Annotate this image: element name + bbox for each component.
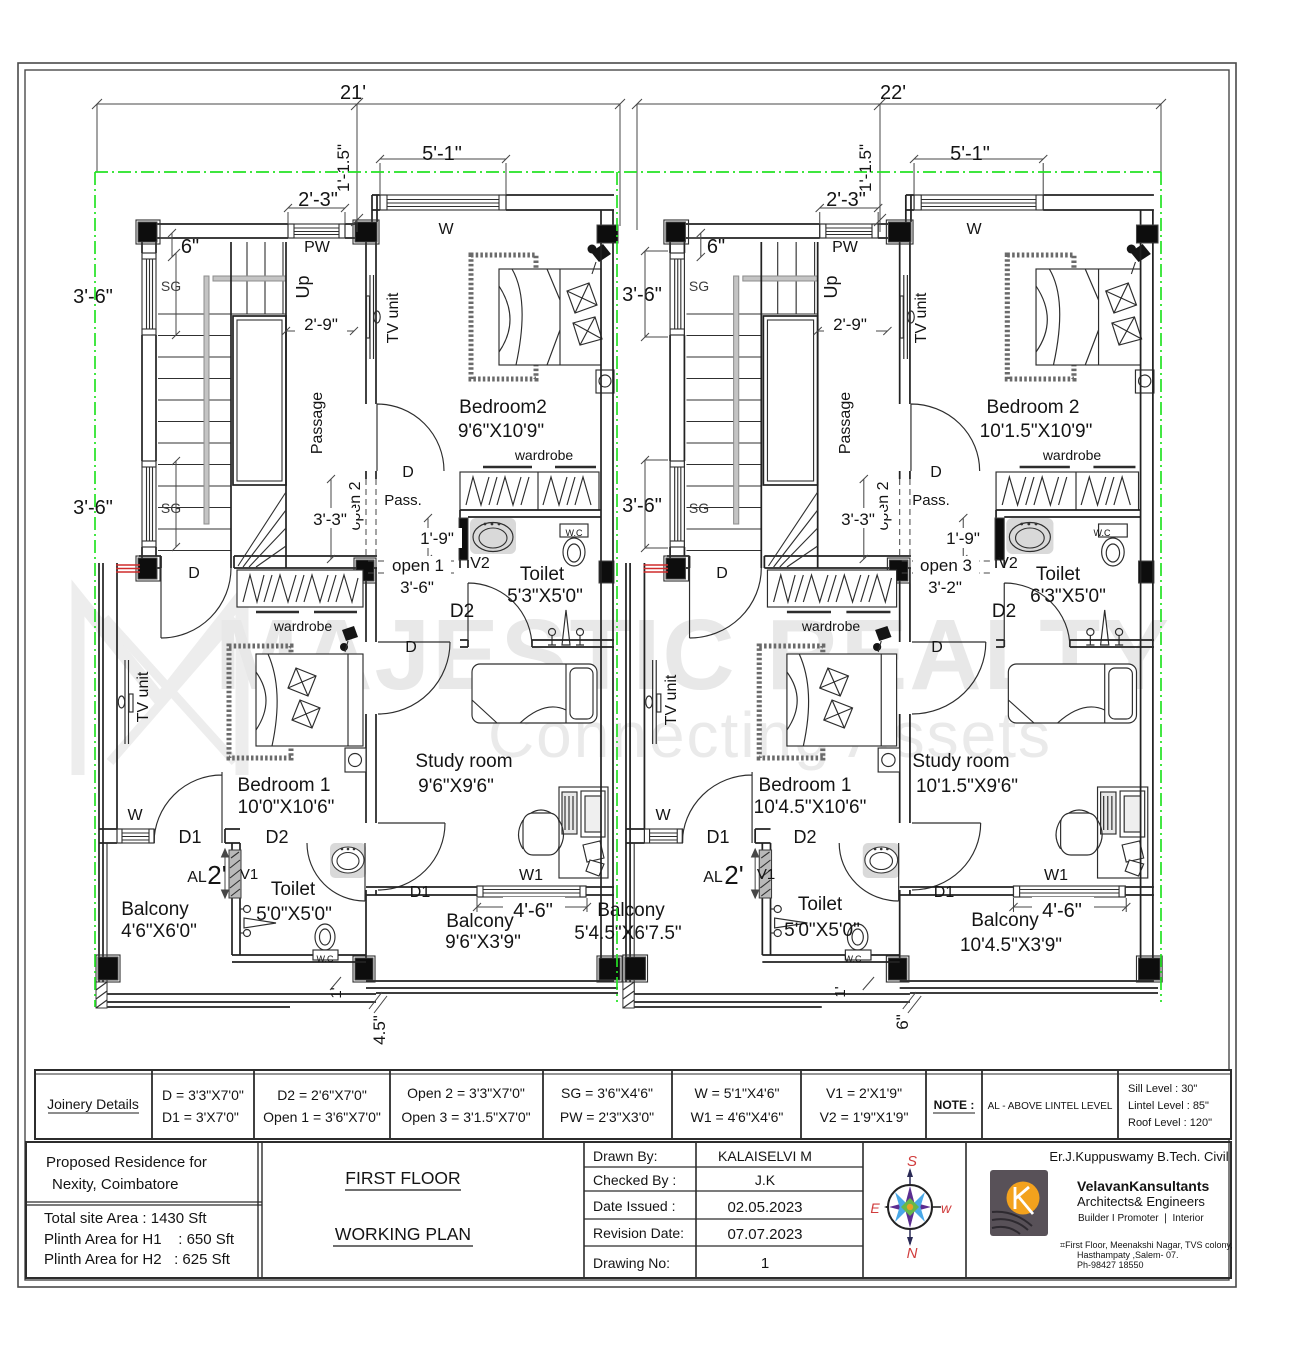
svg-text:Lintel Level : 85": Lintel Level : 85" — [1128, 1100, 1209, 1112]
svg-text:3'-6": 3'-6" — [73, 497, 113, 519]
svg-text:Balcony: Balcony — [446, 911, 514, 932]
svg-text:D: D — [405, 639, 417, 656]
svg-text:1: 1 — [761, 1255, 769, 1272]
svg-text:02.05.2023: 02.05.2023 — [727, 1199, 802, 1216]
svg-text:D = 3'3"X7'0": D = 3'3"X7'0" — [162, 1087, 244, 1103]
svg-text:9'6"X3'9": 9'6"X3'9" — [445, 932, 521, 953]
svg-text:6": 6" — [707, 236, 725, 258]
svg-text:V1 = 2'X1'9": V1 = 2'X1'9" — [826, 1085, 902, 1101]
svg-text:Drawn By:: Drawn By: — [593, 1148, 658, 1164]
svg-text:3'-6": 3'-6" — [622, 495, 662, 517]
svg-text:Revision Date:: Revision Date: — [593, 1225, 684, 1241]
svg-text:AL: AL — [187, 869, 207, 886]
svg-text:D2 = 2'6"X7'0": D2 = 2'6"X7'0" — [277, 1087, 367, 1103]
svg-text:3'-6": 3'-6" — [400, 578, 434, 597]
svg-text:Up: Up — [293, 275, 313, 298]
svg-text:WORKING PLAN: WORKING PLAN — [335, 1224, 471, 1244]
svg-text:NOTE :: NOTE : — [934, 1098, 975, 1112]
svg-text:E: E — [870, 1200, 880, 1216]
svg-text:Toilet: Toilet — [1036, 564, 1081, 585]
svg-text:Open 1 = 3'6"X7'0": Open 1 = 3'6"X7'0" — [263, 1109, 381, 1125]
svg-text:1': 1' — [832, 986, 849, 997]
svg-text:W: W — [655, 807, 671, 824]
svg-text:w: w — [941, 1200, 952, 1216]
svg-text:10'1.5"X10'9": 10'1.5"X10'9" — [980, 421, 1093, 442]
svg-text:Bedroom 1: Bedroom 1 — [759, 775, 852, 796]
svg-text:4.5": 4.5" — [370, 1015, 389, 1045]
svg-text:D: D — [402, 464, 414, 481]
svg-text:Bedroom 2: Bedroom 2 — [987, 397, 1080, 418]
svg-text:Hasthampaty ,Salem- 07.: Hasthampaty ,Salem- 07. — [1077, 1250, 1179, 1260]
svg-text:5'-1": 5'-1" — [950, 143, 990, 165]
svg-text:9'6"X10'9": 9'6"X10'9" — [458, 421, 544, 442]
svg-text:W1: W1 — [519, 867, 543, 884]
svg-text:SG = 3'6"X4'6": SG = 3'6"X4'6" — [561, 1085, 653, 1101]
svg-text:07.07.2023: 07.07.2023 — [727, 1226, 802, 1243]
svg-text:5'0"X5'0": 5'0"X5'0" — [784, 920, 860, 941]
svg-text:Plinth Area for H2 : 625 Sft: Plinth Area for H2 : 625 Sft — [44, 1251, 231, 1268]
svg-text:wardrobe: wardrobe — [514, 447, 574, 463]
svg-text:3'-3": 3'-3" — [841, 510, 875, 529]
svg-text:AL - ABOVE LINTEL LEVEL: AL - ABOVE LINTEL LEVEL — [988, 1101, 1113, 1112]
svg-text:open 1: open 1 — [392, 556, 444, 575]
svg-text:TV unit: TV unit — [913, 292, 930, 343]
svg-text:Ph-98427 18550: Ph-98427 18550 — [1077, 1260, 1144, 1270]
svg-text:Builder I Promoter ❘ Inter: Builder I Promoter ❘ Interior — [1078, 1213, 1204, 1224]
svg-text:V1: V1 — [757, 866, 775, 883]
svg-text:5'4.5"X6'7.5": 5'4.5"X6'7.5" — [574, 923, 681, 944]
svg-text:Date Issued :: Date Issued : — [593, 1198, 676, 1214]
svg-text:3'-6": 3'-6" — [622, 284, 662, 306]
svg-text:2': 2' — [724, 860, 743, 890]
svg-text:Toilet: Toilet — [520, 564, 565, 585]
svg-text:6": 6" — [893, 1014, 912, 1030]
svg-text:⌗First Floor, Meenakshi Nagar,: ⌗First Floor, Meenakshi Nagar, TVS colon… — [1060, 1240, 1233, 1250]
svg-text:Open 2 = 3'3"X7'0": Open 2 = 3'3"X7'0" — [407, 1085, 525, 1101]
svg-text:Balcony: Balcony — [597, 900, 665, 921]
svg-text:Nexity, Coimbatore: Nexity, Coimbatore — [52, 1176, 178, 1193]
svg-text:Checked By :: Checked By : — [593, 1172, 676, 1188]
svg-text:PW: PW — [304, 239, 331, 256]
svg-text:Pass.: Pass. — [912, 492, 950, 509]
svg-text:Balcony: Balcony — [121, 899, 189, 920]
svg-text:5'0"X5'0": 5'0"X5'0" — [256, 904, 332, 925]
svg-text:D1: D1 — [410, 884, 431, 901]
svg-text:D2: D2 — [265, 827, 288, 847]
svg-text:VelavanKansultants: VelavanKansultants — [1077, 1178, 1209, 1194]
svg-text:V2: V2 — [470, 555, 490, 572]
svg-text:W.C: W.C — [845, 954, 862, 964]
svg-text:W.C: W.C — [566, 528, 583, 538]
svg-text:W1: W1 — [1044, 867, 1068, 884]
svg-text:SG: SG — [161, 500, 181, 516]
svg-text:Pass.: Pass. — [384, 492, 422, 509]
svg-text:D2: D2 — [793, 827, 816, 847]
svg-text:wardrobe: wardrobe — [801, 618, 861, 634]
svg-text:PW: PW — [832, 239, 859, 256]
svg-text:W: W — [966, 221, 982, 238]
svg-text:TV unit: TV unit — [385, 292, 402, 343]
svg-text:5'3"X5'0": 5'3"X5'0" — [507, 586, 583, 607]
svg-text:FIRST FLOOR: FIRST FLOOR — [345, 1168, 460, 1188]
svg-text:W = 5'1"X4'6": W = 5'1"X4'6" — [695, 1085, 780, 1101]
svg-text:1'-9": 1'-9" — [946, 529, 980, 548]
svg-text:W.C: W.C — [317, 954, 334, 964]
svg-text:Sill Level : 30": Sill Level : 30" — [1128, 1083, 1197, 1095]
svg-text:N: N — [907, 1245, 918, 1262]
svg-text:Total site Area : 1430 Sft: Total site Area : 1430 Sft — [44, 1210, 207, 1227]
svg-text:TV unit: TV unit — [663, 674, 680, 725]
svg-text:Up: Up — [821, 275, 841, 298]
svg-text:4'-6": 4'-6" — [513, 900, 553, 922]
svg-text:10'0"X10'6": 10'0"X10'6" — [238, 797, 335, 818]
svg-text:D2: D2 — [992, 601, 1016, 622]
svg-text:V2 = 1'9"X1'9": V2 = 1'9"X1'9" — [820, 1109, 909, 1125]
svg-text:9'6"X9'6": 9'6"X9'6" — [418, 776, 494, 797]
svg-text:2': 2' — [207, 860, 226, 890]
svg-text:6'3"X5'0": 6'3"X5'0" — [1030, 586, 1106, 607]
svg-text:J.K: J.K — [755, 1172, 776, 1188]
svg-text:10'4.5"X3'9": 10'4.5"X3'9" — [960, 935, 1062, 956]
svg-text:2'-9": 2'-9" — [304, 315, 338, 334]
svg-text:SG: SG — [689, 500, 709, 516]
svg-text:Drawing No:: Drawing No: — [593, 1255, 670, 1271]
svg-text:SG: SG — [161, 278, 181, 294]
svg-text:Toilet: Toilet — [271, 879, 316, 900]
svg-text:3'-6": 3'-6" — [73, 286, 113, 308]
svg-text:Architects& Engineers: Architects& Engineers — [1077, 1194, 1205, 1209]
svg-text:1'-1.5": 1'-1.5" — [334, 144, 353, 192]
svg-text:W: W — [438, 221, 454, 238]
svg-text:Passage: Passage — [837, 392, 854, 454]
svg-text:SG: SG — [689, 278, 709, 294]
svg-text:KALAISELVI M: KALAISELVI M — [718, 1148, 812, 1164]
svg-text:21': 21' — [340, 82, 366, 104]
svg-text:Proposed Residence for: Proposed Residence for — [46, 1154, 207, 1171]
svg-text:6": 6" — [181, 236, 199, 258]
svg-text:1': 1' — [328, 987, 345, 998]
svg-text:V1: V1 — [240, 866, 258, 883]
svg-text:PW = 2'3"X3'0": PW = 2'3"X3'0" — [560, 1109, 654, 1125]
svg-text:D: D — [930, 464, 942, 481]
svg-text:W: W — [127, 807, 143, 824]
svg-text:S: S — [907, 1153, 917, 1170]
svg-text:2'-9": 2'-9" — [833, 315, 867, 334]
svg-text:W.C: W.C — [1094, 528, 1111, 538]
svg-text:10'1.5"X9'6": 10'1.5"X9'6" — [916, 776, 1018, 797]
svg-text:Bedroom2: Bedroom2 — [459, 397, 547, 418]
svg-text:Toilet: Toilet — [798, 894, 843, 915]
svg-text:D: D — [716, 565, 728, 582]
svg-text:D2: D2 — [450, 601, 474, 622]
svg-text:Joinery Details: Joinery Details — [47, 1096, 139, 1112]
svg-text:AL: AL — [703, 869, 723, 886]
svg-text:wardrobe: wardrobe — [273, 618, 333, 634]
svg-text:D: D — [188, 565, 200, 582]
svg-text:Study room: Study room — [415, 751, 512, 772]
svg-text:TV unit: TV unit — [135, 671, 152, 722]
svg-text:D1: D1 — [178, 827, 201, 847]
svg-text:5'-1": 5'-1" — [422, 143, 462, 165]
svg-text:10'4.5"X10'6": 10'4.5"X10'6" — [754, 797, 867, 818]
svg-text:Study room: Study room — [912, 751, 1009, 772]
svg-text:D: D — [931, 639, 943, 656]
svg-text:Passage: Passage — [309, 392, 326, 454]
svg-text:D1: D1 — [706, 827, 729, 847]
svg-text:D1: D1 — [934, 884, 955, 901]
svg-text:Bedroom 1: Bedroom 1 — [238, 775, 331, 796]
svg-text:Plinth Area for H1 : 650 Sf: Plinth Area for H1 : 650 Sft — [44, 1231, 235, 1248]
svg-text:1'-1.5": 1'-1.5" — [856, 144, 875, 192]
svg-text:W1 = 4'6"X4'6": W1 = 4'6"X4'6" — [691, 1109, 784, 1125]
svg-text:3'-2": 3'-2" — [928, 578, 962, 597]
svg-text:Open 3 = 3'1.5"X7'0": Open 3 = 3'1.5"X7'0" — [401, 1109, 530, 1125]
svg-text:2'-3": 2'-3" — [298, 189, 338, 211]
svg-text:4'-6": 4'-6" — [1042, 900, 1082, 922]
svg-text:D1 = 3'X7'0": D1 = 3'X7'0" — [162, 1109, 239, 1125]
svg-text:V2: V2 — [998, 555, 1018, 572]
svg-text:Roof Level : 120": Roof Level : 120" — [1128, 1117, 1212, 1129]
svg-text:wardrobe: wardrobe — [1042, 447, 1102, 463]
svg-text:Er.J.Kuppuswamy B.Tech. Civil: Er.J.Kuppuswamy B.Tech. Civil — [1049, 1149, 1228, 1164]
svg-text:3'-3": 3'-3" — [313, 510, 347, 529]
svg-text:4'6"X6'0": 4'6"X6'0" — [121, 921, 197, 942]
svg-text:1'-9": 1'-9" — [420, 529, 454, 548]
svg-text:Balcony: Balcony — [971, 910, 1039, 931]
svg-text:open 3: open 3 — [920, 556, 972, 575]
